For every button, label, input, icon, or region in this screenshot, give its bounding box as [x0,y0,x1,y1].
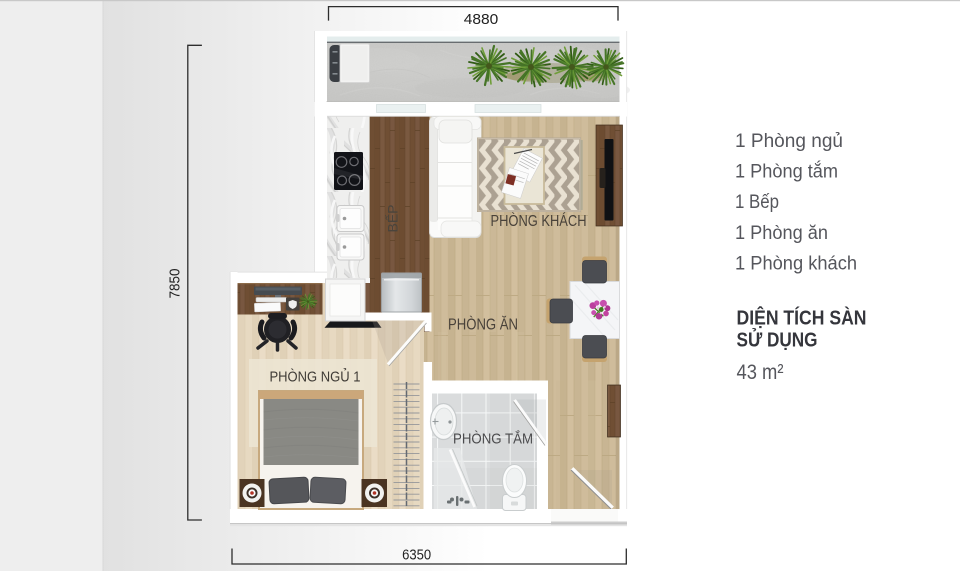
svg-text:BẾP: BẾP [385,205,401,233]
svg-text:1 Bếp: 1 Bếp [735,192,779,213]
svg-text:SỬ DỤNG: SỬ DỤNG [737,328,818,352]
svg-text:PHÒNG ĂN: PHÒNG ĂN [448,315,518,334]
svg-text:6350: 6350 [402,548,431,564]
svg-text:4880: 4880 [464,11,499,28]
svg-text:PHÒNG NGỦ 1: PHÒNG NGỦ 1 [270,368,361,386]
svg-text:1 Phòng khách: 1 Phòng khách [735,254,857,275]
svg-text:PHÒNG TẮM: PHÒNG TẮM [453,430,533,448]
svg-text:7850: 7850 [167,269,184,299]
svg-text:1 Phòng tắm: 1 Phòng tắm [735,161,838,183]
svg-text:PHÒNG KHÁCH: PHÒNG KHÁCH [491,211,587,230]
svg-text:DIỆN TÍCH SÀN: DIỆN TÍCH SÀN [737,305,867,329]
svg-text:1 Phòng ăn: 1 Phòng ăn [735,223,828,244]
svg-text:43 m²: 43 m² [737,361,784,384]
svg-text:1 Phòng ngủ: 1 Phòng ngủ [735,131,843,152]
